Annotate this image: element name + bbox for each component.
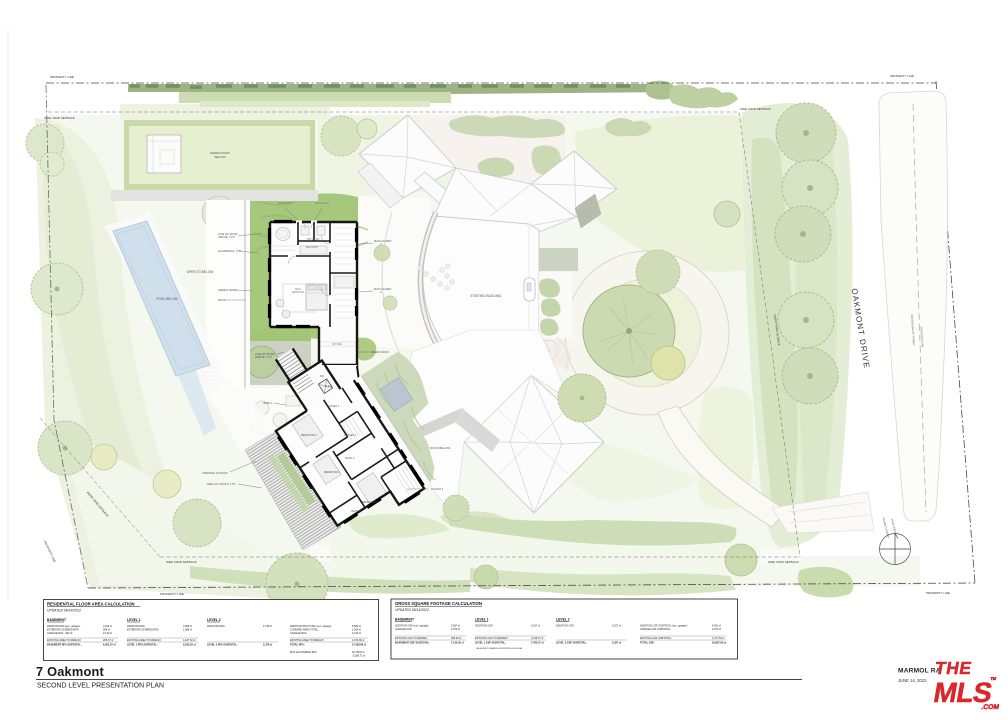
svg-text:9,523.52 sf: 9,523.52 sf [183, 644, 196, 647]
svg-text:ADDITION RFA:: ADDITION RFA: [207, 625, 226, 628]
svg-text:WET ROOM: WET ROOM [307, 239, 320, 241]
svg-text:* SEE AS-BUILT DRAWINGS FOR EX: * SEE AS-BUILT DRAWINGS FOR EXISTING GSF… [475, 647, 522, 650]
svg-text:PROPERTY LINE: PROPERTY LINE [50, 75, 74, 79]
svg-text:3,617 sf: 3,617 sf [531, 625, 540, 628]
svg-text:LEVEL 2 GSF SUBTOTAL:: LEVEL 2 GSF SUBTOTAL: [556, 642, 587, 645]
svg-text:PROPERTY LINE: PROPERTY LINE [890, 74, 914, 78]
svg-text:MAIN BATH: MAIN BATH [306, 246, 319, 249]
svg-text:BEDROOM: BEDROOM [292, 292, 304, 294]
svg-text:MAIN CLOSET: MAIN CLOSET [374, 287, 392, 291]
svg-text:GREEN ROOF: GREEN ROOF [218, 288, 237, 292]
svg-text:2,130 sf: 2,130 sf [352, 632, 361, 635]
svg-text:598.26 sf: 598.26 sf [451, 637, 462, 640]
svg-text:SIDE YARD SETBACK: SIDE YARD SETBACK [44, 116, 75, 120]
svg-text:BATH 2: BATH 2 [346, 456, 355, 460]
svg-text:LEVEL 2 RFA SUBTOTAL:: LEVEL 2 RFA SUBTOTAL: [207, 644, 238, 647]
svg-text:LEVEL 1: LEVEL 1 [127, 618, 141, 622]
svg-text:BASEMENT: BASEMENT [395, 618, 415, 622]
svg-text:GARAGE GSF:: GARAGE GSF: [395, 628, 413, 631]
svg-text:MAX ALLOWABLE RFA:: MAX ALLOWABLE RFA: [290, 651, 318, 654]
svg-text:4,737.63 sf: 4,737.63 sf [712, 637, 725, 640]
svg-text:2,627 sf: 2,627 sf [612, 625, 621, 628]
svg-text:SIDE YARD SETBACK: SIDE YARD SETBACK [740, 107, 771, 111]
svg-text:4,168.37 sf: 4,168.37 sf [531, 637, 544, 640]
svg-text:GREEN ROOF: GREEN ROOF [370, 350, 389, 354]
svg-text:RESIDENTIAL FLOOR AREA CALCULA: RESIDENTIAL FLOOR AREA CALCULATION [47, 602, 134, 607]
svg-text:4,372.89 sf: 4,372.89 sf [352, 639, 365, 642]
svg-text:DN: DN [320, 374, 324, 378]
svg-text:BATH 3: BATH 3 [352, 509, 361, 513]
svg-text:BASEMENT RFA SUBTOTAL:: BASEMENT RFA SUBTOTAL: [47, 644, 82, 647]
svg-text:BEDROOM 1: BEDROOM 1 [301, 433, 317, 437]
svg-text:EXISTING GSF TO REMAIN*:: EXISTING GSF TO REMAIN*: [475, 637, 509, 640]
svg-text:LEVEL 1: LEVEL 1 [475, 618, 489, 622]
svg-text:GROSS SQUARE FOOTAGE CALCULATI: GROSS SQUARE FOOTAGE CALCULATION [395, 601, 482, 606]
svg-text:EXISTING AREA TO REMAIN:: EXISTING AREA TO REMAIN: [47, 639, 81, 642]
svg-text:SIDE YARD SETBACK: SIDE YARD SETBACK [166, 560, 197, 564]
svg-text:ABOVE, TYP: ABOVE, TYP [255, 355, 272, 359]
svg-text:2,970 sf: 2,970 sf [712, 628, 721, 631]
svg-text:ELEV: ELEV [325, 384, 332, 388]
svg-text:MAIN TOILET: MAIN TOILET [315, 202, 330, 205]
svg-text:ADDITION GSF:: ADDITION GSF: [475, 625, 494, 628]
svg-text:2,970 sf: 2,970 sf [451, 628, 460, 631]
svg-text:PROPERTY LINE: PROPERTY LINE [926, 591, 950, 595]
svg-text:CLOSET 2: CLOSET 2 [344, 433, 357, 437]
svg-text:SECOND LEVEL PRESENTATION PLAN: SECOND LEVEL PRESENTATION PLAN [37, 683, 164, 690]
svg-text:LEVEL 2: LEVEL 2 [207, 618, 221, 622]
svg-text:BATH 1: BATH 1 [264, 401, 273, 405]
svg-text:2,378 sf: 2,378 sf [263, 625, 272, 628]
svg-text:ABOVE, TYP: ABOVE, TYP [218, 235, 235, 239]
svg-text:CLOSET 1: CLOSET 1 [327, 404, 340, 408]
svg-text:MAIN CLOSET: MAIN CLOSET [374, 239, 392, 243]
svg-text:4,187.52 sf: 4,187.52 sf [183, 639, 196, 642]
svg-text:GARAGE RFA - 400 sf:: GARAGE RFA - 400 sf: [47, 632, 73, 635]
svg-text:THE: THE [933, 658, 973, 678]
svg-text:7,135.26 sf: 7,135.26 sf [451, 642, 464, 645]
svg-text:17,483.89 sf: 17,483.89 sf [352, 644, 366, 647]
svg-text:OPEN TO BELOW: OPEN TO BELOW [187, 270, 214, 274]
svg-text:TOTAL RFA:: TOTAL RFA: [290, 644, 305, 647]
svg-text:BEDROOM 3: BEDROOM 3 [362, 500, 378, 504]
svg-text:6,002.37 sf: 6,002.37 sf [103, 644, 116, 647]
svg-text:DECK: DECK [218, 298, 226, 302]
svg-text:MAIN TOILET: MAIN TOILET [278, 202, 293, 205]
svg-text:OPENING IN ROOF: OPENING IN ROOF [202, 471, 228, 475]
svg-text:EXISTING BUILDING: EXISTING BUILDING [471, 294, 502, 298]
svg-text:EXISTING GSF SUBTOTAL:: EXISTING GSF SUBTOTAL: [640, 637, 672, 640]
svg-text:CLOSET 3: CLOSET 3 [431, 487, 444, 491]
svg-text:GUARDRAIL, TYP: GUARDRAIL, TYP [218, 249, 241, 253]
svg-text:POOL BELOW: POOL BELOW [156, 297, 177, 301]
svg-text:JUNE 14, 2022: JUNE 14, 2022 [898, 678, 927, 683]
svg-text:EXISTING AREA TO REMAIN:: EXISTING AREA TO REMAIN: [127, 639, 161, 642]
svg-text:UPDATED 08/14/2022: UPDATED 08/14/2022 [395, 608, 429, 612]
svg-text:TRELLIS JOISTS, TYP: TRELLIS JOISTS, TYP [207, 482, 236, 486]
svg-text:EXISTING AREA TO REMAIN:: EXISTING AREA TO REMAIN: [290, 639, 324, 642]
svg-text:TOTAL GSF:: TOTAL GSF: [640, 642, 655, 645]
svg-text:2,378 sf: 2,378 sf [263, 644, 272, 647]
svg-text:UPDATED 08/14/2022: UPDATED 08/14/2022 [47, 609, 81, 613]
svg-text:BASEMENT GSF SUBTOTAL:: BASEMENT GSF SUBTOTAL: [395, 642, 430, 645]
svg-text:ADDITION GSF:: ADDITION GSF: [556, 625, 575, 628]
svg-text:EXISTING GSF TO REMAIN:: EXISTING GSF TO REMAIN: [395, 637, 428, 640]
svg-text:LEVEL 1 GSF SUBTOTAL:: LEVEL 1 GSF SUBTOTAL: [475, 642, 506, 645]
svg-text:SIDE YARD SETBACK: SIDE YARD SETBACK [768, 560, 799, 564]
svg-text:LEVEL 2: LEVEL 2 [556, 618, 570, 622]
svg-text:BELOW: BELOW [215, 155, 226, 159]
svg-text:.COM: .COM [981, 704, 1000, 711]
svg-text:2,130 sf: 2,130 sf [103, 632, 112, 635]
svg-text:7,785.37 sf: 7,785.37 sf [531, 642, 544, 645]
svg-text:MAIN: MAIN [295, 288, 301, 291]
svg-text:KITCHEN: KITCHEN [332, 344, 342, 346]
svg-text:BEDROOM 2: BEDROOM 2 [324, 470, 340, 474]
svg-text:EXTERIOR COVERED RFA:: EXTERIOR COVERED RFA: [127, 629, 159, 632]
svg-text:PROPERTY LINE: PROPERTY LINE [160, 592, 184, 596]
svg-text:GARAGE RFA:: GARAGE RFA: [290, 632, 307, 635]
svg-text:-3,285.71 sf: -3,285.71 sf [352, 655, 366, 658]
svg-text:1,988 sf: 1,988 sf [183, 629, 192, 632]
svg-text:BASEMENT: BASEMENT [47, 618, 67, 622]
svg-text:7 Oakmont: 7 Oakmont [36, 664, 104, 679]
svg-text:GARAGE GSF SUBTOTAL:: GARAGE GSF SUBTOTAL: [640, 628, 671, 631]
svg-text:205.37 sf: 205.37 sf [103, 639, 114, 642]
svg-text:LEVEL 1 RFA SUBTOTAL:: LEVEL 1 RFA SUBTOTAL: [127, 644, 158, 647]
svg-text:ROOF BELOW: ROOF BELOW [430, 446, 451, 450]
svg-text:2,627 sf: 2,627 sf [612, 642, 621, 645]
svg-text:19,837.63 sf: 19,837.63 sf [712, 642, 726, 645]
